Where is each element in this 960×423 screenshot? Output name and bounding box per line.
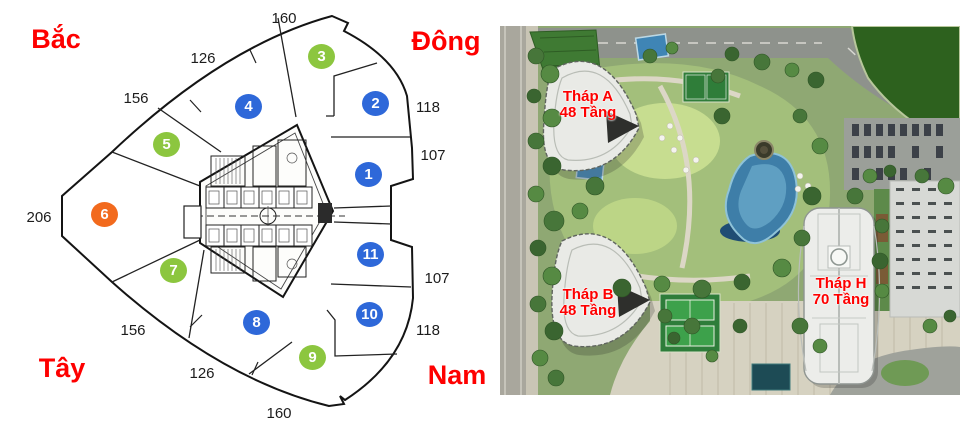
dimension-label-bottom: 160 xyxy=(261,405,297,422)
compass-label-south: Nam xyxy=(407,360,507,391)
tower-h-name: Tháp H xyxy=(816,275,867,292)
reflecting-pond xyxy=(752,364,790,390)
tower-a-name: Tháp A xyxy=(563,88,613,105)
unit-badge-11[interactable]: 11 xyxy=(357,242,384,267)
compass-label-north: Bắc xyxy=(6,24,106,55)
unit-badge-7[interactable]: 7 xyxy=(160,258,187,283)
dimension-label-right-bottom: 118 xyxy=(410,322,446,339)
elevator-bank-lower xyxy=(206,225,312,246)
page: 1 2 3 4 5 6 7 8 9 10 11 160 126 156 206 … xyxy=(0,0,960,423)
unit-badge-10[interactable]: 10 xyxy=(356,302,383,327)
tower-a-floors: 48 Tầng xyxy=(560,104,617,121)
dimension-label-upper-left: 156 xyxy=(118,90,154,107)
unit-badge-8[interactable]: 8 xyxy=(243,310,270,335)
dimension-label-right-top: 118 xyxy=(410,99,446,116)
site-plan-illustration xyxy=(500,26,960,395)
dimension-label-bottom-left: 126 xyxy=(184,365,220,382)
road-west xyxy=(500,26,526,395)
compass-label-east: Đông xyxy=(396,26,496,57)
tower-a-label: Tháp A 48 Tầng xyxy=(540,89,636,121)
dimension-label-right-upper: 107 xyxy=(415,147,451,164)
podium-roof xyxy=(890,181,960,317)
unit-badge-3[interactable]: 3 xyxy=(308,44,335,69)
unit-badge-4[interactable]: 4 xyxy=(235,94,262,119)
dimension-label-top-left: 126 xyxy=(185,50,221,67)
floor-plan-panel: 1 2 3 4 5 6 7 8 9 10 11 160 126 156 206 … xyxy=(0,0,480,423)
unit-badge-1[interactable]: 1 xyxy=(355,162,382,187)
tower-h-label: Tháp H 70 Tầng xyxy=(793,276,889,308)
dimension-label-lower-left: 156 xyxy=(115,322,151,339)
tower-b-label: Tháp B 48 Tầng xyxy=(540,287,636,319)
unit-badge-2[interactable]: 2 xyxy=(362,91,389,116)
unit-badge-6[interactable]: 6 xyxy=(91,202,118,227)
tower-b-floors: 48 Tầng xyxy=(560,302,617,319)
dimension-label-top: 160 xyxy=(266,10,302,27)
elevator-bank-upper xyxy=(206,187,312,208)
tower-h-floors: 70 Tầng xyxy=(813,291,870,308)
unit-badge-5[interactable]: 5 xyxy=(153,132,180,157)
unit-badge-9[interactable]: 9 xyxy=(299,345,326,370)
dimension-label-right-lower: 107 xyxy=(419,270,455,287)
compass-label-west: Tây xyxy=(12,353,112,384)
dimension-label-left: 206 xyxy=(21,209,57,226)
site-plan-panel xyxy=(500,26,960,395)
helipad xyxy=(828,246,850,268)
tower-b-name: Tháp B xyxy=(563,286,614,303)
